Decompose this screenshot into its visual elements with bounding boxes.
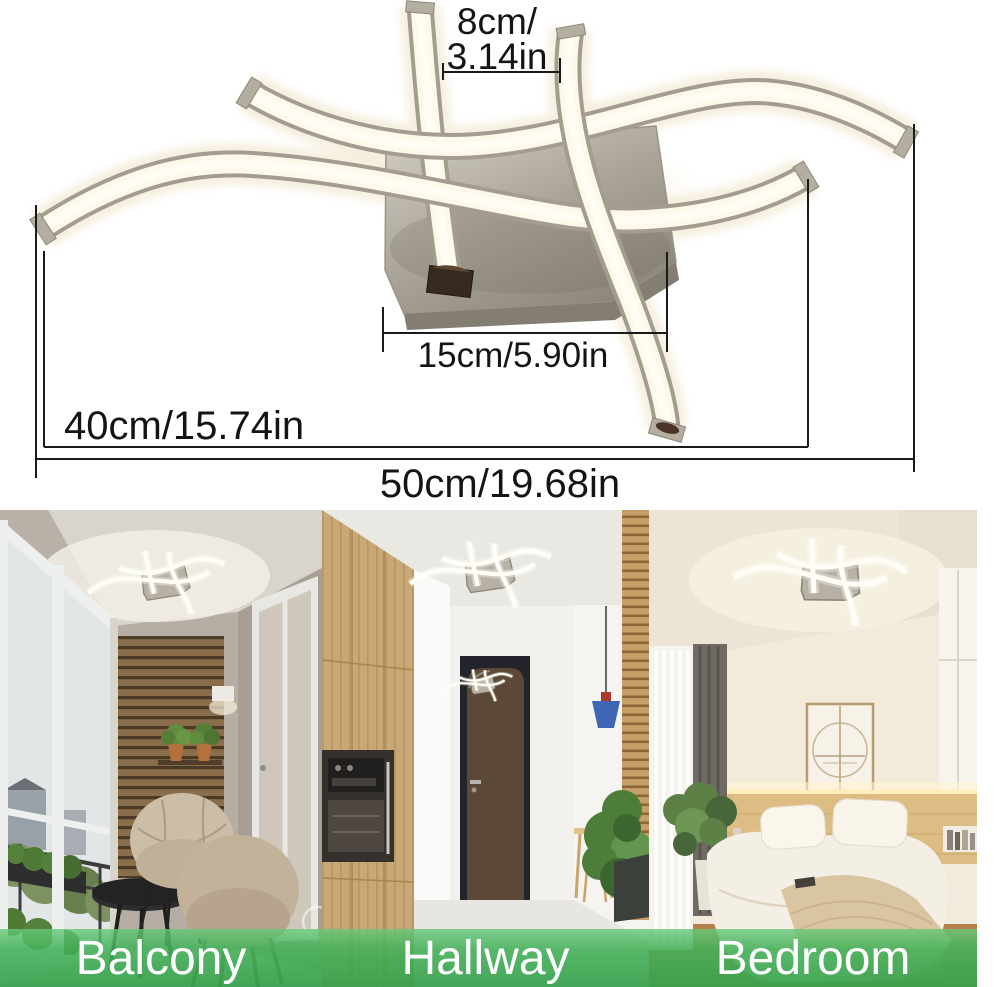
room-photo-bedroom: Bedroom (649, 510, 977, 987)
wall-art (807, 704, 873, 794)
dimension-label-50cm: 50cm/19.68in (0, 462, 1000, 507)
dimension-label-8cm: 8cm/ 3.14in (397, 4, 597, 74)
dimension-label-8cm-line1: 8cm/ (397, 4, 597, 39)
dimension-label-8cm-line2: 3.14in (397, 39, 597, 74)
dimension-diagram: 8cm/ 3.14in 15cm/5.90in 40cm/15.74in 50c… (0, 0, 1000, 510)
hallway-wood-wall (322, 510, 414, 987)
product-listing-image: 8cm/ 3.14in 15cm/5.90in 40cm/15.74in 50c… (0, 0, 1000, 987)
hallway-illustration (322, 510, 649, 987)
room-photo-balcony: Balcony (0, 510, 322, 987)
hallway-door (460, 656, 530, 900)
dimension-label-15cm: 15cm/5.90in (363, 336, 663, 376)
room-label-balcony: Balcony (0, 929, 322, 987)
room-label-bedroom: Bedroom (649, 929, 977, 987)
bedroom-illustration (649, 510, 977, 987)
room-photos: Balcony (0, 510, 1000, 987)
built-in-oven (322, 750, 394, 862)
kitchen-counter (614, 854, 649, 922)
balcony-illustration (0, 510, 322, 987)
dimension-label-40cm: 40cm/15.74in (64, 404, 304, 449)
wall-lamp (209, 686, 237, 715)
room-label-hallway: Hallway (322, 929, 649, 987)
book-shelf (943, 826, 977, 852)
room-photo-hallway: Hallway (322, 510, 649, 987)
